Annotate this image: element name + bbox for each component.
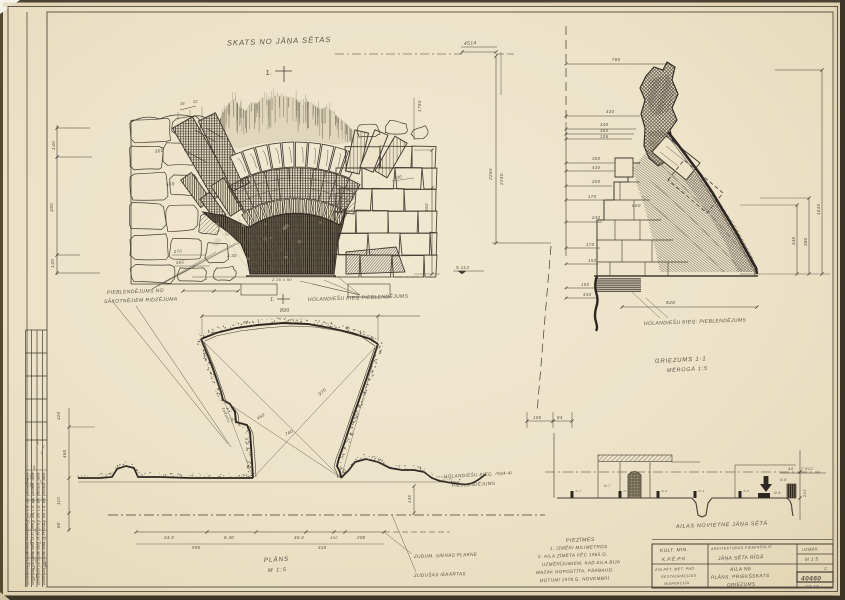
svg-text:140: 140 [51,141,57,150]
svg-text:380: 380 [803,237,808,246]
svg-text:150: 150 [581,282,590,287]
svg-text:5.113: 5.113 [456,265,469,270]
svg-text:340: 340 [600,122,609,127]
svg-text:UZMĒR.: UZMĒR. [802,546,819,552]
svg-text:7.512: 7.512 [801,466,813,471]
svg-text:N.8: N.8 [780,478,786,482]
svg-text:820: 820 [666,300,675,306]
svg-text:38: 38 [180,101,186,106]
svg-text:450: 450 [49,203,55,212]
svg-text:310: 310 [318,545,327,550]
svg-text:80: 80 [56,522,61,528]
svg-text:84: 84 [557,415,563,420]
svg-text:34.0: 34.0 [164,535,174,540]
svg-text:2260: 2260 [488,168,493,181]
svg-text:460: 460 [424,203,429,212]
svg-text:PLĀNS: PLĀNS [264,556,290,564]
svg-text:1.: 1. [265,69,273,77]
svg-text:N.4: N.4 [699,489,705,493]
svg-text:uzmērījumi pārbaudīti dabā 14.: uzmērījumi pārbaudīti dabā 14.XI 1978.g.… [37,473,41,585]
svg-text:40460: 40460 [800,576,821,583]
svg-text:200: 200 [591,179,601,184]
svg-text:430: 430 [592,165,601,170]
svg-text:46.0: 46.0 [294,535,304,540]
svg-text:440: 440 [583,292,592,297]
svg-text:N.3: N.3 [662,489,668,493]
svg-text:GRIEZUMS: GRIEZUMS [727,581,756,588]
svg-text:102: 102 [330,535,338,540]
svg-text:550: 550 [166,181,175,187]
svg-text:AILA N6: AILA N6 [729,566,751,573]
svg-text:890: 890 [280,308,290,314]
svg-text:135: 135 [407,495,412,503]
svg-text:240: 240 [591,215,601,220]
svg-text:200: 200 [356,535,366,540]
svg-text:365: 365 [176,259,185,265]
svg-text:N.1: N.1 [576,489,582,493]
svg-text:760: 760 [612,57,621,62]
svg-text:170: 170 [588,194,597,199]
svg-text:440: 440 [791,236,796,245]
svg-text:590: 590 [192,545,201,550]
svg-text:8.30: 8.30 [224,535,234,540]
svg-text:140: 140 [50,259,56,268]
svg-text:2240: 2240 [499,173,504,186]
svg-text:170: 170 [586,242,595,247]
svg-text:N.6: N.6 [774,491,781,495]
svg-text:M 1:5: M 1:5 [268,567,287,574]
svg-text:150: 150 [588,258,597,263]
svg-text:300: 300 [592,156,601,161]
svg-text:420: 420 [56,411,61,420]
svg-text:44: 44 [788,466,794,471]
svg-text:110: 110 [56,497,61,505]
svg-text:M 1:5: M 1:5 [805,557,819,562]
svg-text:KULT. MIN.: KULT. MIN. [660,547,688,554]
svg-text:460: 460 [62,449,67,458]
svg-text:2: 2 [823,566,827,571]
svg-text:N.2: N.2 [624,489,630,493]
svg-text:660: 660 [632,203,641,208]
svg-text:1045: 1045 [816,203,821,215]
svg-text:32: 32 [193,99,199,104]
svg-text:212: 212 [802,489,807,498]
svg-text:105: 105 [533,415,542,420]
svg-text:2.50: 2.50 [251,258,262,263]
svg-text:02-16: 02-16 [806,584,819,589]
svg-text:2.30 x 90: 2.30 x 90 [271,277,292,282]
svg-text:1750: 1750 [417,100,422,112]
svg-text:270: 270 [173,248,183,254]
svg-text:130: 130 [394,174,403,180]
svg-text:N.7: N.7 [604,484,610,488]
svg-text:430: 430 [606,109,615,114]
svg-text:2.30: 2.30 [226,253,237,258]
svg-text:1.: 1. [270,297,275,303]
svg-text:4514: 4514 [464,40,477,47]
svg-text:N.5: N.5 [744,489,750,493]
svg-text:PIEZĪMES: PIEZĪMES [566,536,595,544]
svg-text:106: 106 [600,134,609,139]
svg-text:380: 380 [600,128,609,133]
